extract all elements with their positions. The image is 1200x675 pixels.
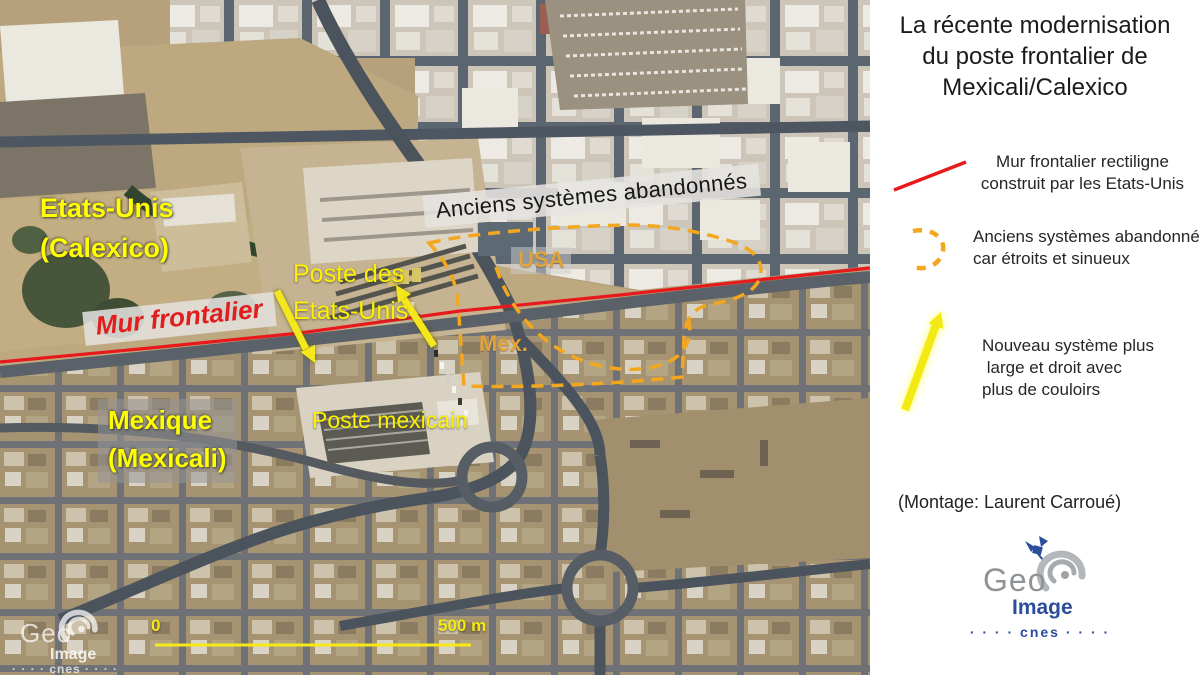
logo-geo-text: Geo bbox=[983, 562, 1046, 599]
title-line3: Mexicali/Calexico bbox=[870, 72, 1200, 103]
geoimage-logo: Geo Image · · · · cnes · · · · bbox=[870, 548, 1200, 658]
watermark-logo: Geo Image · · · · cnes · · · · bbox=[12, 604, 162, 674]
credit-line: (Montage: Laurent Carroué) bbox=[898, 492, 1121, 513]
globe-icon bbox=[58, 606, 100, 644]
sidebar: La récente modernisation du poste fronta… bbox=[870, 0, 1200, 675]
label-etats-unis-line2: (Calexico) bbox=[40, 228, 174, 268]
label-etats-unis-line1: Etats-Unis bbox=[40, 188, 174, 228]
label-mexique-mexicali: Mexique (Mexicali) bbox=[98, 399, 237, 483]
abandoned-systems-outline bbox=[429, 225, 761, 387]
label-poste-us-line2: Etats-Unis bbox=[293, 293, 408, 330]
title-line1: La récente modernisation bbox=[870, 10, 1200, 41]
yellow-arrow-icon bbox=[895, 306, 951, 418]
map-canvas: Etats-Unis (Calexico) Mur frontalier Anc… bbox=[0, 0, 870, 675]
legend-new-system: Nouveau système plus large et droit avec… bbox=[982, 335, 1154, 401]
label-poste-us-line1: Poste des bbox=[293, 256, 408, 293]
logo-cnes-text: · · · · cnes · · · · bbox=[965, 624, 1115, 640]
slide: Etats-Unis (Calexico) Mur frontalier Anc… bbox=[0, 0, 1200, 675]
red-line-icon bbox=[892, 150, 970, 194]
legend-abandoned-systems: Anciens systèmes abandonnés car étroits … bbox=[973, 226, 1198, 270]
scale-end-label: 500 m bbox=[438, 616, 486, 636]
logo-image-text: Image bbox=[1012, 596, 1073, 620]
slide-title: La récente modernisation du poste fronta… bbox=[870, 10, 1200, 103]
label-mex: Mex. bbox=[479, 331, 528, 356]
label-etats-unis-calexico: Etats-Unis (Calexico) bbox=[40, 188, 174, 268]
label-mexique-line2: (Mexicali) bbox=[108, 439, 227, 477]
orange-dashed-arc-icon bbox=[903, 223, 951, 275]
watermark-cnes-text: · · · · cnes · · · · bbox=[12, 662, 118, 675]
title-line2: du poste frontalier de bbox=[870, 41, 1200, 72]
label-mexique-line1: Mexique bbox=[108, 401, 227, 439]
legend-border-wall: Mur frontalier rectiligne construit par … bbox=[970, 151, 1195, 195]
label-usa: USA bbox=[511, 247, 571, 274]
label-poste-mexicain: Poste mexicain bbox=[312, 402, 468, 439]
label-poste-etats-unis: Poste des Etats-Unis bbox=[293, 256, 408, 330]
